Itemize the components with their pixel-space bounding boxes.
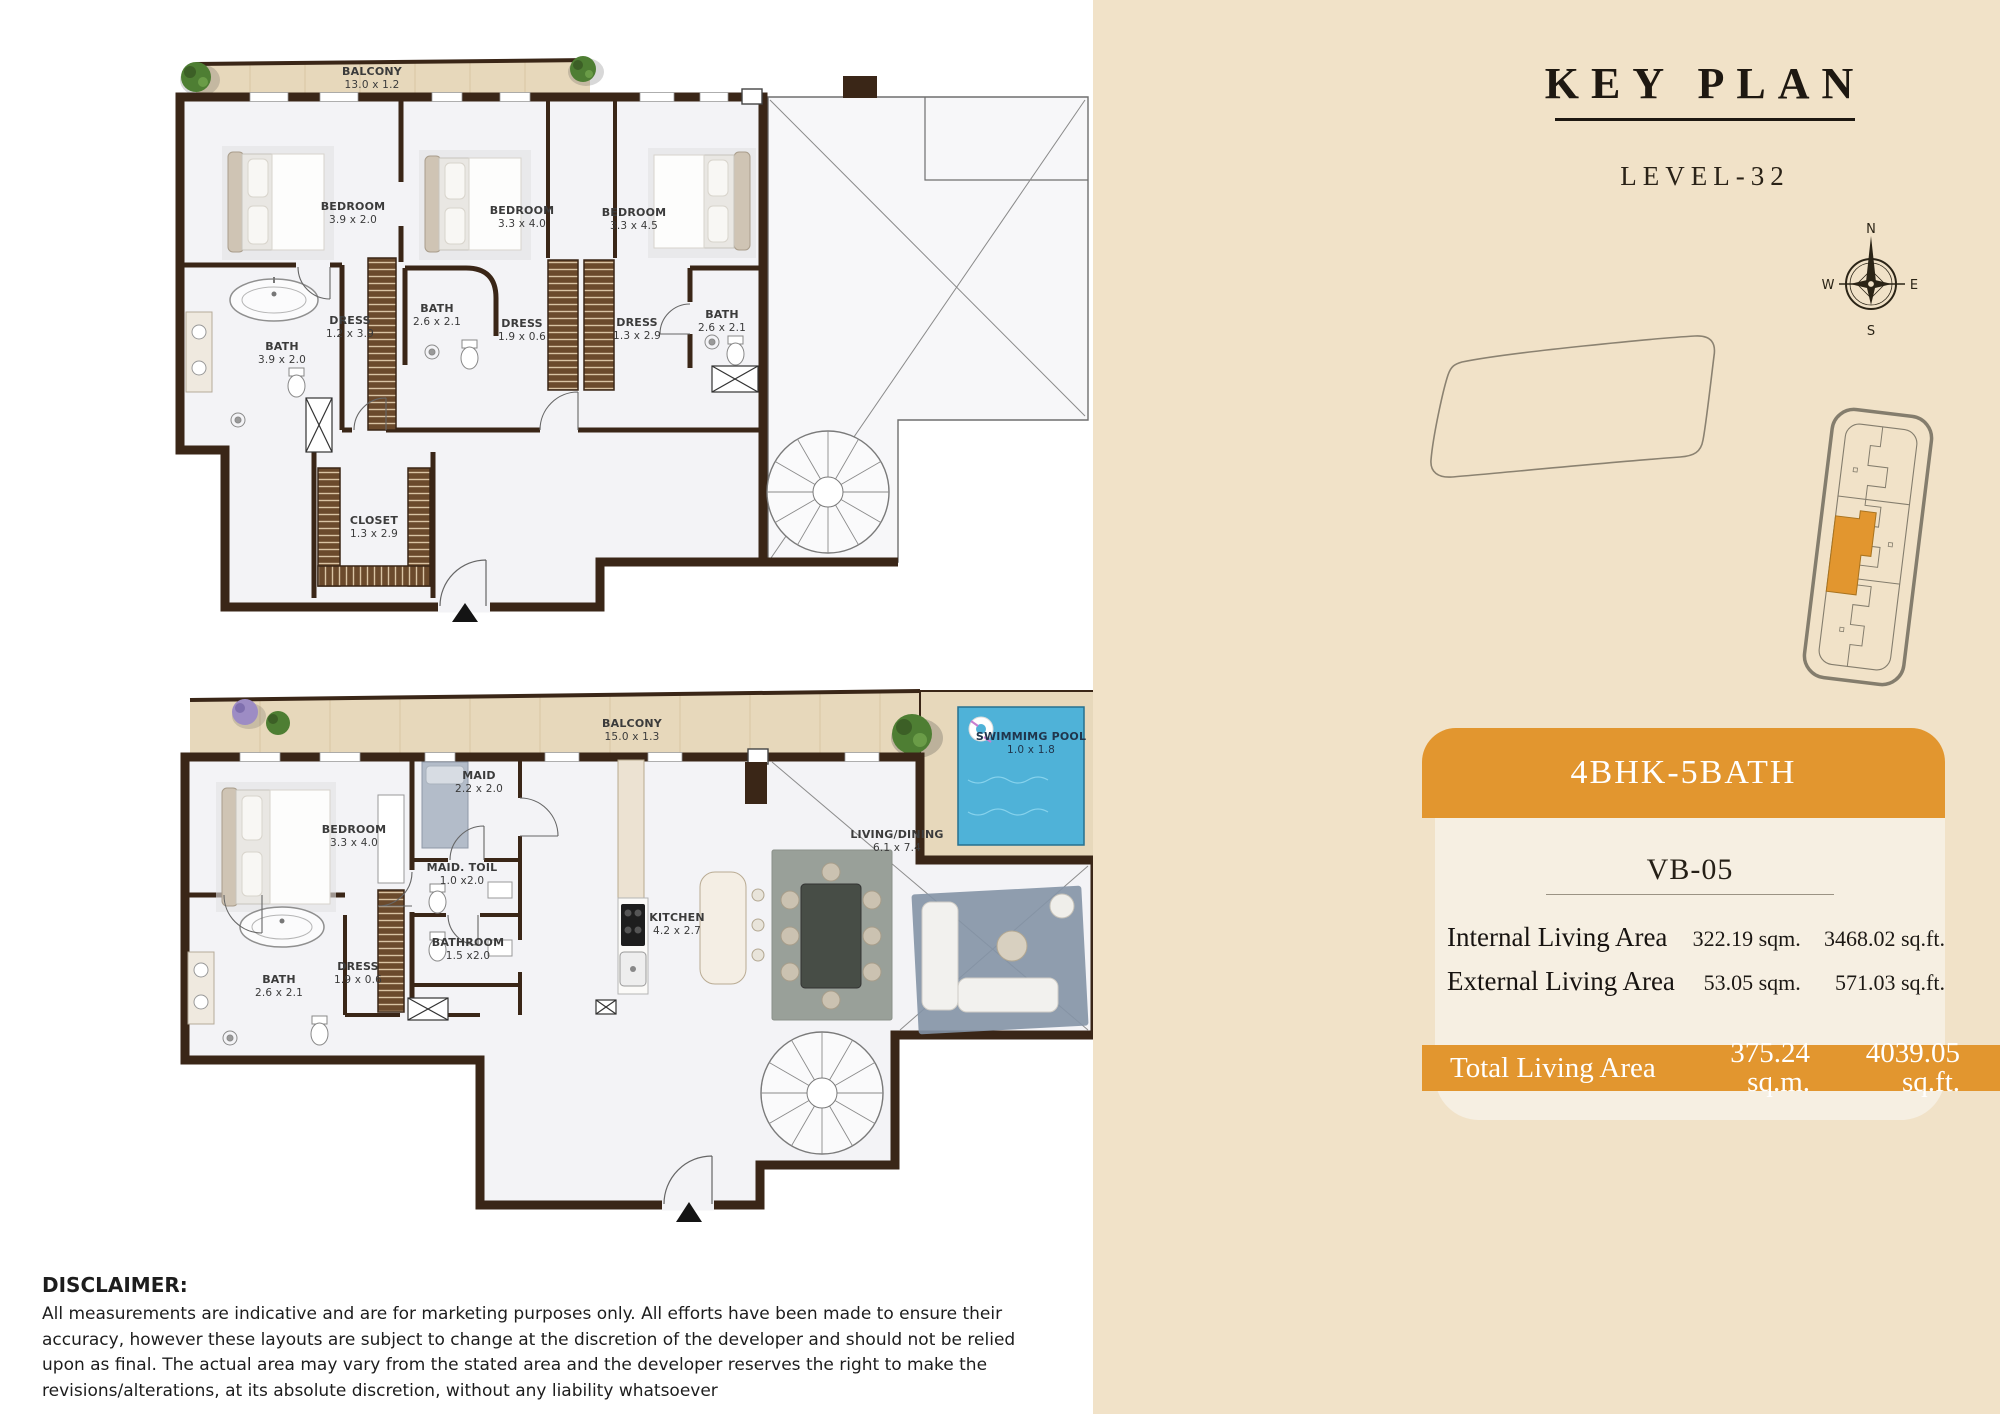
- total-label: Total Living Area: [1450, 1054, 1682, 1083]
- room-label-maid-toilet: MAID. TOIL1.0 x2.0: [427, 861, 498, 889]
- room-label-balcony: BALCONY15.0 x 1.3: [602, 717, 662, 745]
- bed-icon: [216, 782, 336, 912]
- compass-e: E: [1910, 278, 1918, 293]
- room-label-balcony: BALCONY13.0 x 1.2: [342, 65, 402, 93]
- room-label-bath: BATH2.6 x 2.1: [255, 973, 303, 1001]
- plant-icon: [568, 56, 604, 86]
- lower-balcony: [190, 691, 920, 757]
- room-label-bedroom: BEDROOM3.3 x 4.5: [602, 206, 667, 234]
- room-label-bathroom: BATHROOM1.5 x2.0: [432, 936, 504, 964]
- unit-code-underline: [1546, 894, 1834, 895]
- unit-type-label: 4BHK-5BATH: [1571, 756, 1797, 790]
- bathtub-icon: [240, 907, 324, 947]
- room-label-pool: SWIMMIMG POOL1.0 x 1.8: [976, 730, 1086, 758]
- external-area-row: External Living Area 53.05 sqm. 571.03 s…: [1447, 965, 1945, 999]
- key-plan-title: KEY PLAN: [1445, 60, 1965, 108]
- key-plan-map: [1423, 330, 1943, 710]
- room-label-dress: DRESS1.9 x 0.6: [498, 317, 546, 345]
- disclaimer: DISCLAIMER: All measurements are indicat…: [42, 1272, 1062, 1404]
- room-label-bath: BATH2.6 x 2.1: [698, 308, 746, 336]
- marble-wall: [618, 760, 644, 898]
- area-row-sqft: 3468.02 sq.ft.: [1801, 925, 1945, 953]
- area-row-sqm: 322.19 sqm.: [1679, 925, 1801, 953]
- compass-w: W: [1822, 278, 1835, 293]
- kitchen-counter: [618, 898, 648, 994]
- room-label-dress: DRESS1.2 x 3.9: [326, 314, 374, 342]
- area-row-sqft: 571.03 sq.ft.: [1801, 969, 1945, 997]
- building-footprint: [1802, 407, 1934, 687]
- total-sqm: 375.24 sq.m.: [1682, 1039, 1810, 1097]
- room-label-bath: BATH3.9 x 2.0: [258, 340, 306, 368]
- total-living-area-bar: Total Living Area 375.24 sq.m. 4039.05 s…: [1422, 1045, 2000, 1091]
- room-label-bath: BATH2.6 x 2.1: [413, 302, 461, 330]
- room-label-maid: MAID2.2 x 2.0: [455, 769, 503, 797]
- compass-n: N: [1866, 222, 1876, 237]
- swimming-pool: [958, 707, 1084, 845]
- sofa: [911, 886, 1088, 1035]
- spiral-staircase: [761, 1032, 883, 1154]
- internal-area-row: Internal Living Area 322.19 sqm. 3468.02…: [1447, 921, 1945, 955]
- room-label-closet: CLOSET1.3 x 2.9: [350, 514, 398, 542]
- highlighted-unit: [1826, 508, 1876, 596]
- compass-rose-icon: N E S W: [1813, 222, 1929, 338]
- balcony-door: [748, 749, 768, 764]
- total-sqft: 4039.05 sq.ft.: [1810, 1039, 1960, 1097]
- disclaimer-heading: DISCLAIMER:: [42, 1272, 1062, 1298]
- site-outline: [1431, 336, 1715, 477]
- unit-type-badge: 4BHK-5BATH: [1422, 728, 1945, 818]
- floorplan-brochure-page: BALCONY13.0 x 1.2 BEDROOM3.9 x 2.0 BEDRO…: [0, 0, 2000, 1414]
- area-row-sqm: 53.05 sqm.: [1679, 969, 1801, 997]
- key-plan-panel: KEY PLAN LEVEL-32 N E S W: [1093, 0, 2000, 1414]
- pantry-block: [745, 762, 767, 804]
- bed-icon: [648, 148, 756, 258]
- room-label-living-dining: LIVING/DINING6.1 x 7.4: [850, 828, 943, 856]
- vanity-icon: [188, 952, 214, 1024]
- disclaimer-body: All measurements are indicative and are …: [42, 1302, 1062, 1404]
- area-row-label: Internal Living Area: [1447, 921, 1679, 955]
- level-label: LEVEL-32: [1445, 160, 1965, 192]
- room-label-bedroom: BEDROOM3.3 x 4.0: [490, 204, 555, 232]
- unit-code: VB-05: [1435, 852, 1945, 888]
- balcony-door: [742, 89, 762, 104]
- room-label-dress: DRESS1.9 x 0.6: [334, 960, 382, 988]
- room-label-dress: DRESS1.3 x 2.9: [613, 316, 661, 344]
- vanity-icon: [186, 312, 212, 392]
- room-label-bedroom: BEDROOM3.3 x 4.0: [322, 823, 387, 851]
- wardrobe: [378, 890, 404, 1012]
- area-row-label: External Living Area: [1447, 965, 1679, 999]
- duct-block: [843, 76, 877, 98]
- bed-icon: [222, 146, 334, 260]
- spiral-staircase: [767, 431, 889, 553]
- title-underline: [1555, 118, 1855, 121]
- dining-table: [772, 850, 892, 1020]
- room-label-bedroom: BEDROOM3.9 x 2.0: [321, 200, 386, 228]
- room-label-kitchen: KITCHEN4.2 x 2.7: [649, 911, 705, 939]
